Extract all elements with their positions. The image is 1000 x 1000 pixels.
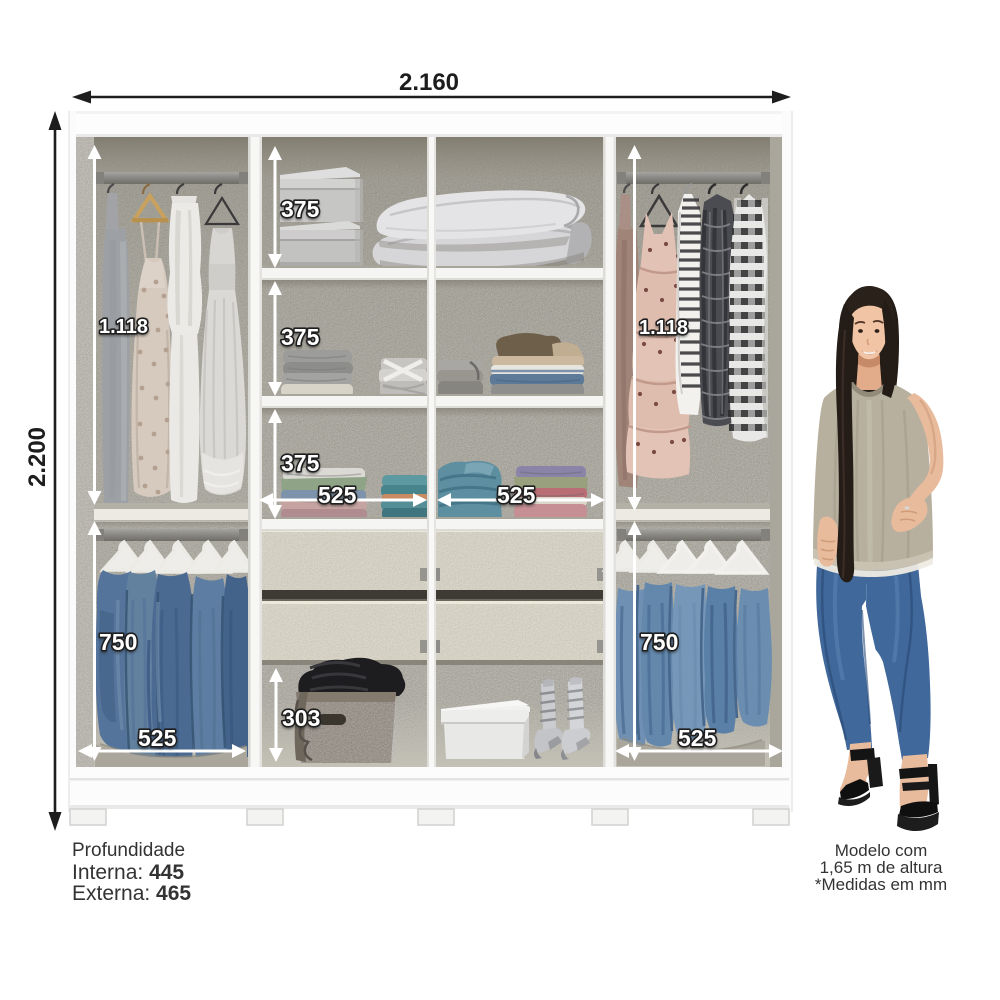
svg-text:525: 525 (678, 725, 717, 751)
svg-text:Externa: 465: Externa: 465 (72, 882, 191, 905)
svg-text:*Medidas em mm: *Medidas em mm (815, 875, 947, 894)
svg-text:2.200: 2.200 (24, 427, 51, 487)
svg-text:Profundidade: Profundidade (72, 840, 185, 861)
svg-text:303: 303 (282, 705, 320, 731)
svg-text:525: 525 (318, 482, 357, 508)
svg-text:750: 750 (99, 629, 137, 655)
svg-text:375: 375 (281, 196, 320, 222)
svg-text:1.118: 1.118 (99, 316, 148, 338)
svg-text:525: 525 (497, 482, 536, 508)
svg-text:375: 375 (281, 450, 320, 476)
svg-text:525: 525 (138, 725, 177, 751)
svg-text:375: 375 (281, 324, 320, 350)
svg-text:1.118: 1.118 (639, 317, 688, 339)
svg-text:2.160: 2.160 (399, 69, 459, 96)
svg-text:Interna: 445: Interna: 445 (72, 861, 184, 884)
svg-text:750: 750 (640, 629, 678, 655)
